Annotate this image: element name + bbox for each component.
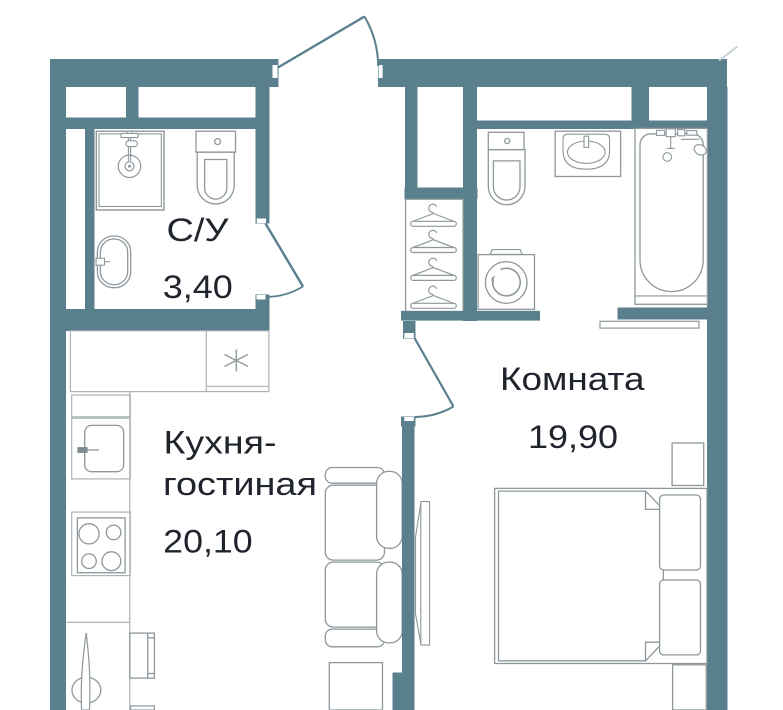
svg-text:3,40: 3,40	[163, 269, 233, 305]
svg-text:19,90: 19,90	[528, 419, 618, 455]
svg-text:Комната: Комната	[500, 361, 645, 397]
svg-text:20,10: 20,10	[163, 524, 253, 560]
svg-text:С/У: С/У	[167, 212, 230, 248]
svg-text:гостиная: гостиная	[163, 466, 317, 502]
svg-text:Кухня-: Кухня-	[164, 425, 277, 461]
